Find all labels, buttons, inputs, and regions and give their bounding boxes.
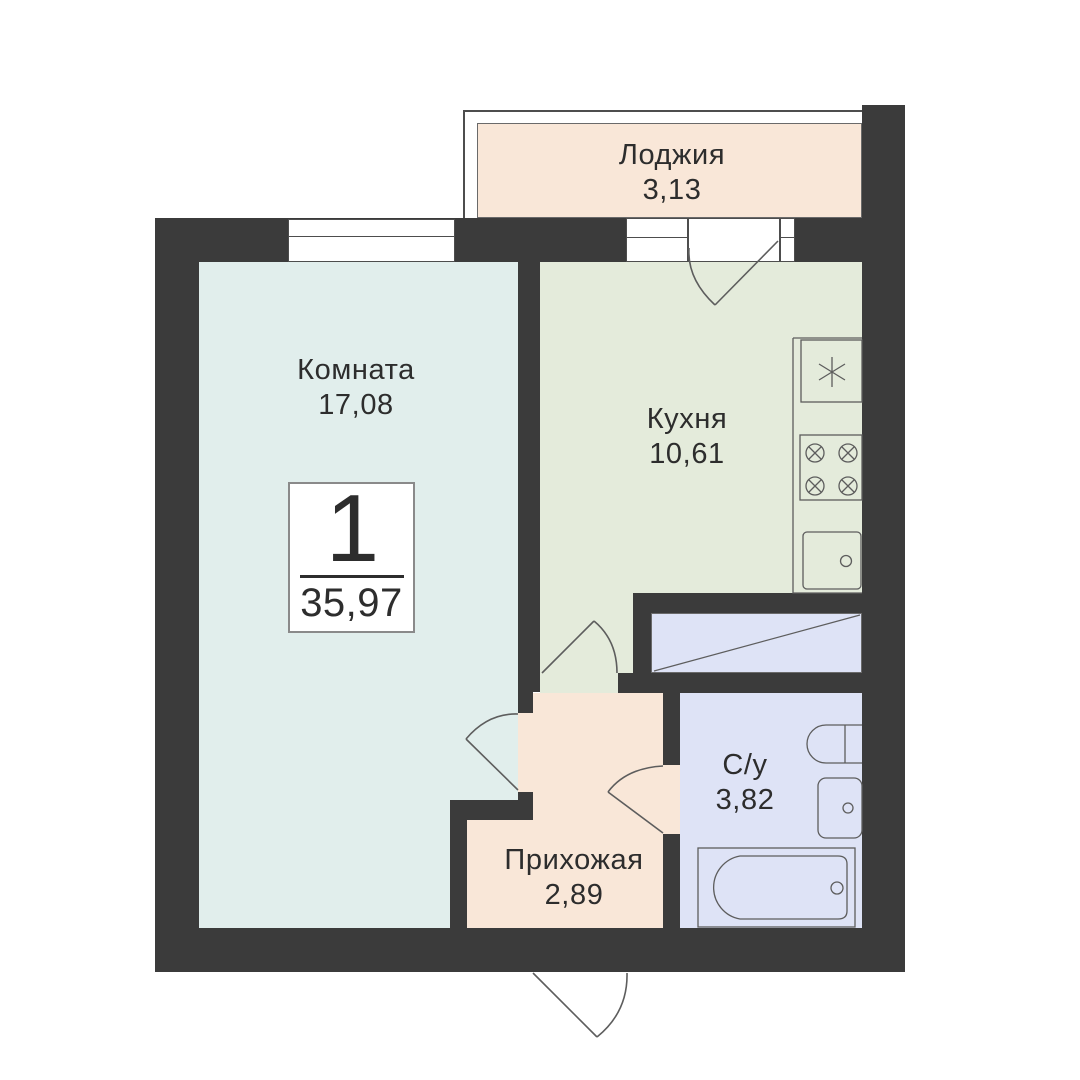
kitchen-label: Кухня 10,61: [587, 402, 787, 472]
wall-exterior-bottom: [155, 928, 905, 972]
kitchen-area: 10,61: [587, 437, 787, 472]
hallway-label: Прихожая 2,89: [454, 843, 694, 913]
room-window-glazing-line: [289, 236, 454, 237]
wall-step: [450, 800, 533, 820]
entry-door-arc: [533, 973, 627, 1037]
wall-kitchen-closet: [633, 593, 862, 613]
room-area: 17,08: [256, 388, 456, 423]
wall-room-kitchen: [518, 262, 540, 692]
room-door-opening: [518, 713, 533, 792]
kitchen-name: Кухня: [587, 402, 787, 437]
loggia-name: Лоджия: [552, 138, 792, 173]
bathroom-label: С/у 3,82: [670, 748, 820, 818]
wall-closet-left: [633, 613, 651, 673]
closet-niche: [651, 613, 862, 673]
wall-exterior-right: [862, 105, 905, 972]
unit-number: 1: [326, 484, 377, 574]
wall-room-hall-upper: [518, 692, 533, 713]
room-name: Комната: [256, 353, 456, 388]
kitchen-window: [626, 218, 688, 262]
balcony-door-opening: [688, 218, 780, 262]
wall-exterior-left: [155, 218, 199, 972]
hallway-name: Прихожая: [454, 843, 694, 878]
unit-info-box: 1 35,97: [288, 482, 415, 633]
small-window-glazing-line: [781, 237, 794, 238]
kitchen-window-glazing-line: [627, 237, 687, 238]
small-window: [780, 218, 795, 262]
loggia-label: Лоджия 3,13: [552, 138, 792, 208]
bathroom-area: 3,82: [670, 783, 820, 818]
loggia-area: 3,13: [552, 173, 792, 208]
wall-kitchen-bottom: [618, 673, 862, 693]
kitchen-door-opening: [540, 673, 618, 693]
room-window: [288, 219, 455, 262]
unit-total-area: 35,97: [300, 578, 403, 628]
hallway-area: 2,89: [454, 878, 694, 913]
kitchen-floor-lower: [540, 593, 633, 673]
floor-plan: Лоджия 3,13 Комната 17,08 Кухня 10,61 С/…: [0, 0, 1080, 1080]
bathroom-name: С/у: [670, 748, 820, 783]
room-floor-lower: [199, 800, 450, 928]
room-label: Комната 17,08: [256, 353, 456, 423]
